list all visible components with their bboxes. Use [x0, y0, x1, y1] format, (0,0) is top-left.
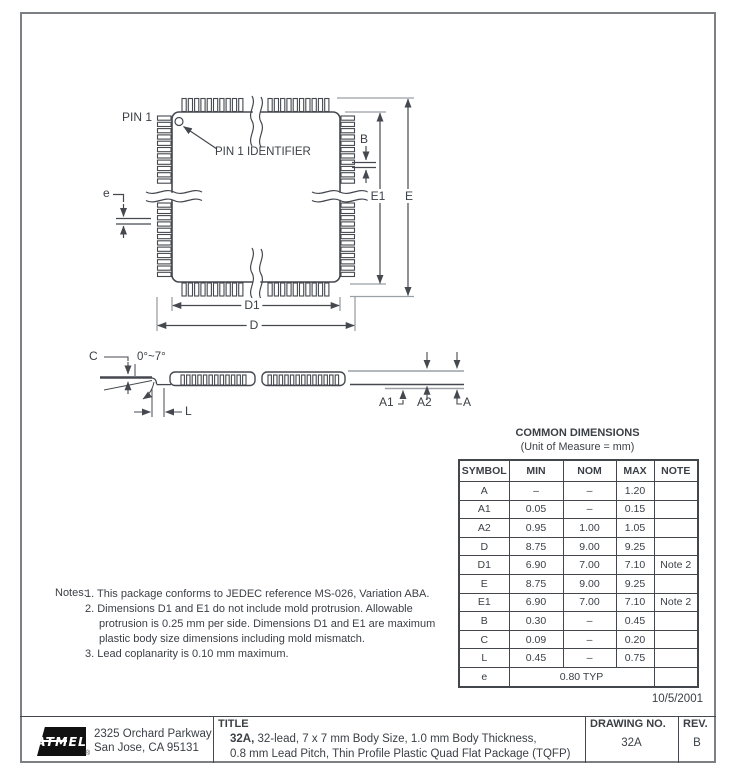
col-header: NOTE: [654, 460, 698, 482]
dim-l-label: L: [185, 404, 192, 418]
drawing-sheet: PIN 1 PIN 1 IDENTIFIER B E1 E e D1 D C 0…: [0, 0, 736, 779]
table-cell: 0.95: [509, 519, 563, 538]
table-header-row: SYMBOL MIN NOM MAX NOTE: [459, 460, 698, 482]
address-line: San Jose, CA 95131: [94, 742, 212, 756]
table-cell: [654, 519, 698, 538]
company-address: 2325 Orchard Parkway San Jose, CA 95131: [94, 728, 212, 755]
drawing-no-value: 32A: [585, 737, 678, 749]
table-subtitle: (Unit of Measure = mm): [458, 441, 697, 453]
title-block-divider: [213, 716, 214, 763]
table-cell: 0.80 TYP: [509, 667, 654, 686]
table-cell: 6.90: [509, 593, 563, 612]
table-cell: A: [459, 482, 509, 501]
dim-a2-label: A2: [417, 395, 432, 409]
table-cell: 1.05: [616, 519, 654, 538]
table-cell: 0.75: [616, 649, 654, 668]
table-row: E8.759.009.25: [459, 574, 698, 593]
table-row: D16.907.007.10Note 2: [459, 556, 698, 575]
table-cell: [654, 612, 698, 631]
table-cell: 7.00: [563, 593, 616, 612]
table-cell: 8.75: [509, 537, 563, 556]
common-dimensions-table: SYMBOL MIN NOM MAX NOTE A––1.20A10.05–0.…: [458, 459, 699, 688]
table-cell: 0.09: [509, 630, 563, 649]
drawing-title-line1: 32A, 32-lead, 7 x 7 mm Body Size, 1.0 mm…: [230, 733, 537, 745]
dim-a1-label: A1: [379, 395, 394, 409]
table-cell: 9.25: [616, 574, 654, 593]
table-cell: –: [563, 500, 616, 519]
table-cell: 6.90: [509, 556, 563, 575]
table-cell: [654, 482, 698, 501]
table-cell: A2: [459, 519, 509, 538]
dim-pitch-label: e: [103, 186, 110, 200]
table-cell: 7.10: [616, 593, 654, 612]
note-item: 1. This package conforms to JEDEC refere…: [85, 587, 453, 602]
drawing-no-label: DRAWING NO.: [590, 718, 666, 730]
dim-e-label: E: [402, 189, 416, 203]
atmel-logo: ATMEL: [37, 727, 86, 756]
table-cell: [654, 667, 698, 686]
col-header: NOM: [563, 460, 616, 482]
table-cell: –: [509, 482, 563, 501]
table-cell: C: [459, 630, 509, 649]
table-row: B0.30–0.45: [459, 612, 698, 631]
dim-c-label: C: [89, 349, 98, 363]
table-cell: 8.75: [509, 574, 563, 593]
pin1-identifier-mark: [175, 118, 217, 150]
table-row: L0.45–0.75: [459, 649, 698, 668]
table-cell: [654, 500, 698, 519]
table-cell: 1.20: [616, 482, 654, 501]
table-cell: E: [459, 574, 509, 593]
table-cell: –: [563, 612, 616, 631]
drawing-code-bold: 32A,: [230, 733, 254, 745]
angle-label: 0°~7°: [137, 351, 166, 363]
table-row: E16.907.007.10Note 2: [459, 593, 698, 612]
table-cell: 0.15: [616, 500, 654, 519]
table-cell: B: [459, 612, 509, 631]
dim-d1-label: D1: [241, 298, 262, 312]
table-cell: –: [563, 630, 616, 649]
table-row: D8.759.009.25: [459, 537, 698, 556]
table-cell: [654, 537, 698, 556]
table-cell: 0.45: [616, 612, 654, 631]
table-title: COMMON DIMENSIONS: [458, 427, 697, 439]
rev-value: B: [678, 737, 716, 749]
table-cell: Note 2: [654, 593, 698, 612]
title-block-divider: [20, 716, 716, 717]
table-cell: Note 2: [654, 556, 698, 575]
drawing-title-rest: 32-lead, 7 x 7 mm Body Size, 1.0 mm Body…: [254, 733, 536, 745]
table-cell: 0.45: [509, 649, 563, 668]
notes-list: 1. This package conforms to JEDEC refere…: [85, 587, 453, 662]
col-header: MAX: [616, 460, 654, 482]
notes-label: Notes:: [55, 587, 87, 599]
table-cell: 7.10: [616, 556, 654, 575]
table-row-e: e0.80 TYP: [459, 667, 698, 686]
col-header: MIN: [509, 460, 563, 482]
table-cell: –: [563, 649, 616, 668]
rev-label: REV.: [683, 718, 708, 730]
dim-e1-label: E1: [368, 189, 389, 203]
drawing-title-line2: 0.8 mm Lead Pitch, Thin Profile Plastic …: [230, 748, 570, 760]
table-cell: E1: [459, 593, 509, 612]
break-marks: [146, 96, 368, 299]
table-cell: 9.00: [563, 574, 616, 593]
table-cell: e: [459, 667, 509, 686]
table-cell: 9.25: [616, 537, 654, 556]
table-row: A10.05–0.15: [459, 500, 698, 519]
dim-a-label: A: [463, 395, 471, 409]
table-cell: –: [563, 482, 616, 501]
table-cell: D: [459, 537, 509, 556]
pin1-label: PIN 1: [122, 110, 152, 124]
registered-mark: ®: [85, 750, 90, 757]
dim-b-label: B: [360, 132, 368, 146]
table-cell: D1: [459, 556, 509, 575]
table-cell: 1.00: [563, 519, 616, 538]
table-cell: A1: [459, 500, 509, 519]
table-cell: 0.30: [509, 612, 563, 631]
drawing-date: 10/5/2001: [580, 693, 703, 705]
table-cell: [654, 574, 698, 593]
address-line: 2325 Orchard Parkway: [94, 728, 212, 742]
table-row: C0.09–0.20: [459, 630, 698, 649]
table-cell: 0.20: [616, 630, 654, 649]
note-item: 2. Dimensions D1 and E1 do not include m…: [85, 602, 453, 647]
table-cell: [654, 649, 698, 668]
atmel-logo-text: ATMEL: [36, 734, 87, 749]
table-cell: 0.05: [509, 500, 563, 519]
table-cell: L: [459, 649, 509, 668]
table-cell: 7.00: [563, 556, 616, 575]
table-cell: [654, 630, 698, 649]
col-header: SYMBOL: [459, 460, 509, 482]
table-row: A––1.20: [459, 482, 698, 501]
pin1-identifier-label: PIN 1 IDENTIFIER: [215, 146, 311, 158]
note-item: 3. Lead coplanarity is 0.10 mm maximum.: [85, 647, 453, 662]
table-row: A20.951.001.05: [459, 519, 698, 538]
table-cell: 9.00: [563, 537, 616, 556]
dim-d-label: D: [247, 318, 262, 332]
title-label: TITLE: [218, 718, 249, 730]
